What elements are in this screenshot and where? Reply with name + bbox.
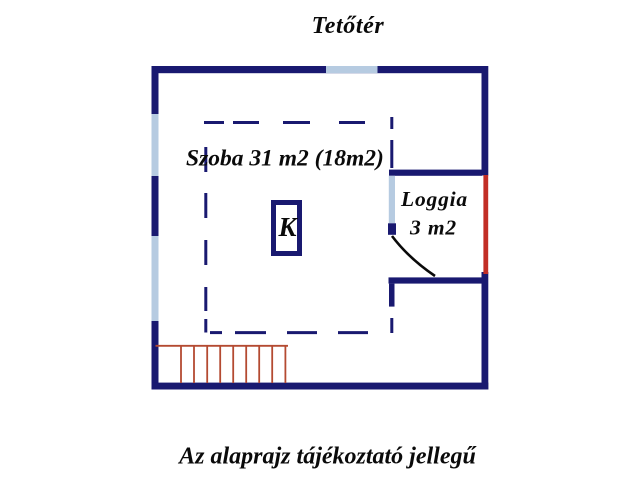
svg-text:3 m2: 3 m2 (409, 216, 457, 240)
svg-text:K: K (277, 212, 298, 242)
svg-text:Loggia: Loggia (400, 187, 468, 211)
svg-text:Szoba 31 m2 (18m2): Szoba 31 m2 (18m2) (186, 146, 384, 172)
svg-text:Az alaprajz tájékoztató jelleg: Az alaprajz tájékoztató jellegű (177, 444, 477, 470)
svg-text:Tetőtér: Tetőtér (312, 13, 385, 39)
